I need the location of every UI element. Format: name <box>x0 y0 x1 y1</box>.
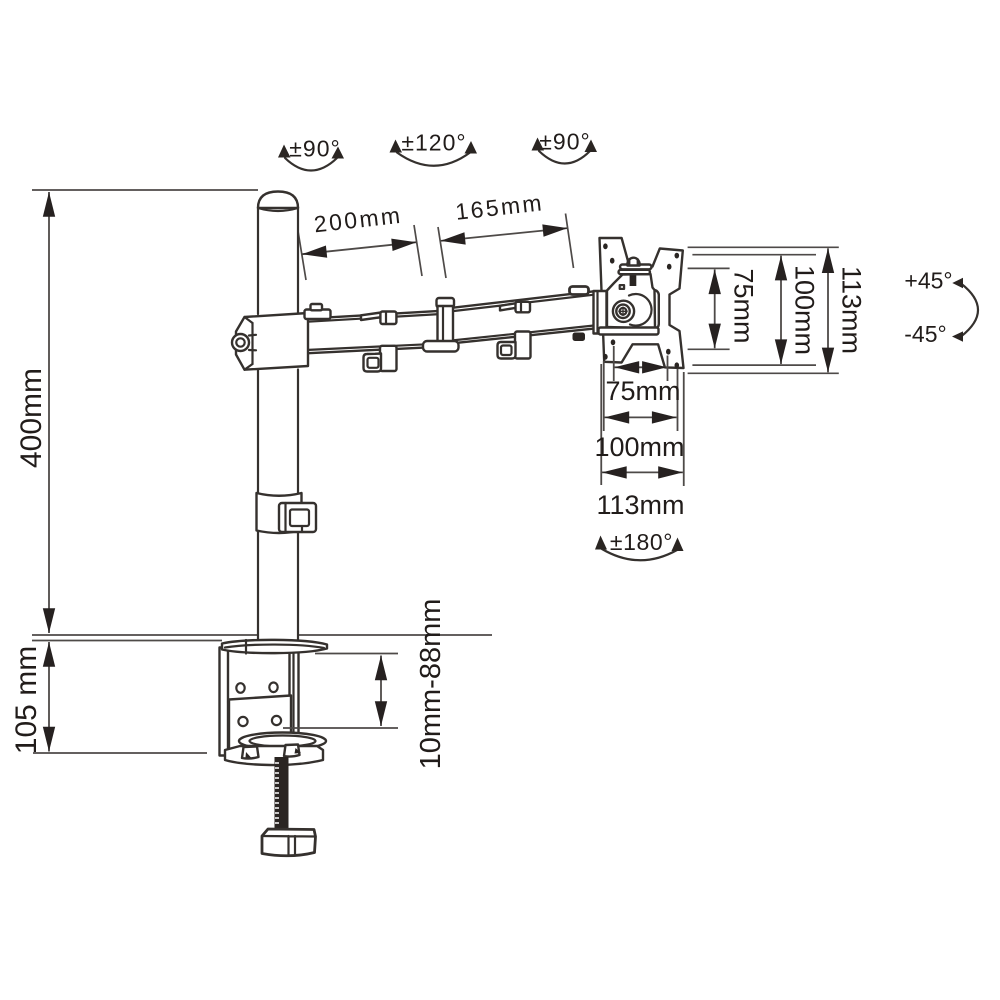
svg-text:±90°: ±90° <box>539 129 590 155</box>
svg-text:75mm: 75mm <box>605 376 680 406</box>
svg-text:113mm: 113mm <box>596 490 684 520</box>
svg-text:10mm-88mm: 10mm-88mm <box>415 599 447 770</box>
svg-text:75mm: 75mm <box>729 268 759 343</box>
svg-text:200mm: 200mm <box>313 202 404 238</box>
svg-text:165mm: 165mm <box>454 189 545 225</box>
svg-text:100mm: 100mm <box>790 265 820 355</box>
svg-text:+45°: +45° <box>904 268 952 294</box>
svg-text:±180°: ±180° <box>610 529 673 555</box>
svg-text:-45°: -45° <box>904 321 946 347</box>
svg-text:±120°: ±120° <box>401 130 466 156</box>
svg-text:400mm: 400mm <box>15 368 48 468</box>
svg-text:113mm: 113mm <box>837 266 867 354</box>
svg-text:105 mm: 105 mm <box>10 646 43 754</box>
svg-text:100mm: 100mm <box>594 432 684 462</box>
